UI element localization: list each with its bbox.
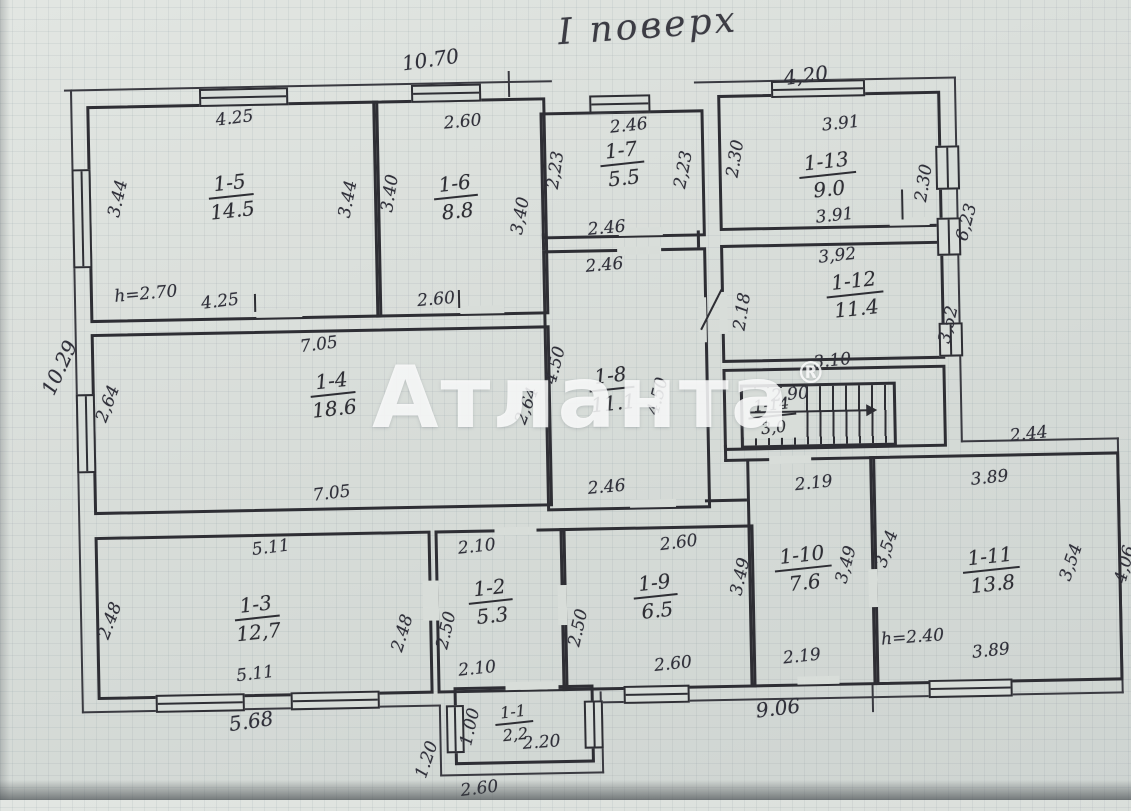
dim-r6-bottom: 2.60 bbox=[416, 288, 455, 311]
room-area: 12,7 bbox=[235, 617, 282, 647]
dim-outer-top-left: 10.70 bbox=[400, 44, 460, 76]
dim-r11-top: 3.89 bbox=[970, 466, 1010, 490]
room-area: 8.8 bbox=[434, 196, 481, 226]
dim-r2-bottom: 2.10 bbox=[457, 657, 497, 681]
registered-trademark-icon: ® bbox=[796, 356, 828, 391]
room-tag-1-13: 1-13 9.0 bbox=[797, 146, 859, 204]
door-opening bbox=[422, 580, 439, 620]
window-symbol bbox=[935, 145, 960, 189]
window-symbol bbox=[589, 94, 650, 113]
photo-edge-shadow-left bbox=[0, 0, 10, 800]
window-symbol bbox=[291, 691, 380, 711]
door-opening bbox=[769, 455, 811, 464]
window-symbol bbox=[76, 394, 97, 473]
dim-r7-bottom: 2.46 bbox=[587, 217, 626, 240]
room-tag-1-10: 1-10 7.6 bbox=[772, 540, 834, 598]
dim-tick bbox=[872, 684, 875, 712]
outer-contour-porch-bottom bbox=[440, 771, 604, 776]
door-opening bbox=[494, 527, 536, 536]
room-tag-1-12: 1-12 11.4 bbox=[824, 266, 886, 324]
room-tag-1-2: 1-2 5.3 bbox=[466, 573, 515, 629]
dim-tick bbox=[508, 71, 510, 97]
door-opening bbox=[719, 292, 728, 334]
wall-segment bbox=[697, 230, 700, 247]
door-leaf bbox=[458, 290, 460, 308]
wall-segment bbox=[542, 233, 545, 250]
door-opening bbox=[520, 681, 558, 690]
dim-r10-bottom: 2.19 bbox=[782, 645, 822, 669]
room-area: 5.5 bbox=[601, 163, 648, 193]
door-opening bbox=[460, 305, 504, 314]
door-opening bbox=[630, 499, 676, 508]
door-opening bbox=[256, 309, 302, 318]
room-area: 18.6 bbox=[311, 393, 358, 423]
wall-segment bbox=[705, 499, 747, 503]
outer-contour-right-upper bbox=[954, 76, 963, 442]
room-area: 5.3 bbox=[469, 600, 516, 630]
watermark: Атланта® bbox=[372, 348, 823, 448]
wall-segment bbox=[724, 459, 748, 462]
window-symbol bbox=[928, 678, 1012, 698]
room-tag-1-5: 1-5 14.5 bbox=[206, 168, 256, 224]
dim-r11-bottom: 3.89 bbox=[971, 639, 1011, 663]
room-tag-1-4: 1-4 18.6 bbox=[308, 366, 358, 422]
outer-contour-porch-left bbox=[439, 704, 442, 776]
door-opening bbox=[797, 676, 839, 685]
room-area: 14.5 bbox=[209, 195, 256, 225]
dim-r2-top: 2.10 bbox=[457, 535, 497, 559]
door-opening bbox=[617, 246, 661, 255]
dim-r1-outer-left: 1.20 bbox=[411, 739, 442, 781]
floor-title: І поверх bbox=[557, 0, 740, 53]
dim-r10-top: 2.19 bbox=[794, 471, 834, 495]
dim-r13-top: 3.91 bbox=[821, 112, 861, 136]
photo-edge-shadow bbox=[0, 780, 1131, 800]
watermark-text: Атланта bbox=[372, 348, 791, 448]
door-opening bbox=[890, 217, 930, 226]
room-tag-1-11: 1-11 13.8 bbox=[960, 541, 1022, 599]
dim-outer-bottom-right: 9.06 bbox=[754, 693, 801, 722]
dim-r12-top: 3,92 bbox=[817, 244, 857, 268]
door-opening bbox=[558, 585, 568, 625]
room-tag-1-7: 1-7 5.5 bbox=[598, 136, 647, 192]
window-symbol bbox=[584, 700, 604, 748]
dim-r7-top: 2.46 bbox=[609, 114, 649, 138]
dim-outer-bottom-left: 5.68 bbox=[227, 706, 274, 736]
room-tag-1-3: 1-3 12,7 bbox=[232, 590, 282, 646]
window-symbol bbox=[71, 169, 92, 268]
window-symbol bbox=[411, 84, 481, 103]
dim-r8-top: 2.46 bbox=[585, 254, 624, 277]
room-tag-1-9: 1-9 6.5 bbox=[631, 568, 680, 624]
dim-r6-top: 2.60 bbox=[443, 110, 482, 133]
window-symbol bbox=[199, 87, 288, 107]
door-opening bbox=[868, 569, 878, 607]
room-tag-1-6: 1-6 8.8 bbox=[431, 169, 480, 225]
dim-r11-top-right: 2.44 bbox=[1009, 422, 1049, 446]
room-area: 6.5 bbox=[634, 595, 681, 625]
window-symbol bbox=[156, 693, 245, 713]
door-leaf bbox=[254, 294, 256, 312]
window-symbol bbox=[624, 685, 690, 704]
dim-r13-bottom: 3.91 bbox=[815, 204, 855, 228]
dim-r9-bottom: 2.60 bbox=[653, 652, 693, 676]
dim-r8-bottom: 2.46 bbox=[587, 476, 626, 499]
dim-r1-inner: 2.20 bbox=[522, 731, 561, 754]
